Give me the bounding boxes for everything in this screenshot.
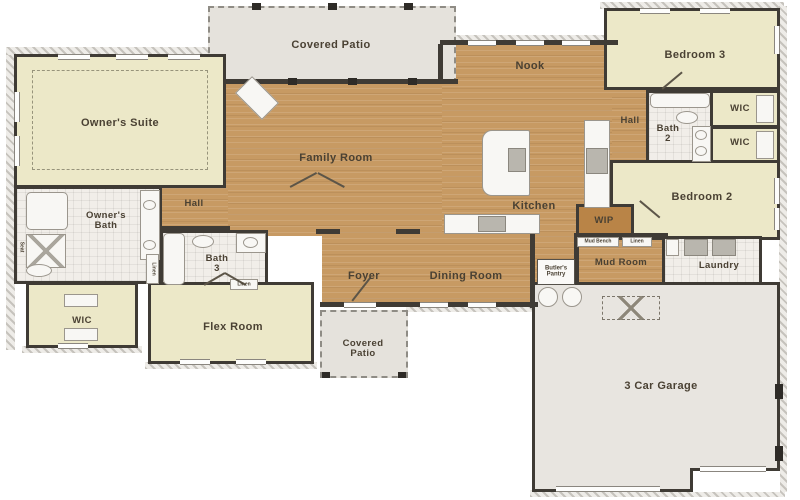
family-column-1 bbox=[288, 78, 297, 85]
sink-bath3 bbox=[243, 237, 258, 248]
sink-owners-1 bbox=[143, 200, 156, 210]
label-bath2: Bath 2 bbox=[657, 124, 680, 145]
label-covered-patio-bottom: Covered Patio bbox=[343, 339, 384, 360]
label-bath3: Bath 3 bbox=[206, 254, 229, 275]
wic-bl-shelf-2 bbox=[64, 328, 98, 341]
label-kitchen: Kitchen bbox=[512, 201, 555, 213]
sink-bath2-2 bbox=[695, 146, 707, 156]
label-butlers-pantry-line2: Pantry bbox=[545, 272, 567, 278]
window-flex-bottom-2 bbox=[236, 359, 266, 365]
wic-bl-shelf-1 bbox=[64, 294, 98, 307]
label-hall-left: Hall bbox=[184, 199, 203, 209]
water-heater-1 bbox=[538, 287, 558, 307]
label-mud-room: Mud Room bbox=[595, 258, 647, 268]
shower-owners-bath bbox=[26, 234, 66, 268]
label-owners-suite: Owner's Suite bbox=[81, 118, 159, 130]
window-bedroom3-top-2 bbox=[700, 8, 730, 14]
label-linen-bath3: Linen bbox=[237, 282, 250, 287]
wall-dining-right bbox=[530, 232, 535, 308]
kitchen-cooktop bbox=[478, 216, 506, 232]
family-column-3 bbox=[408, 78, 417, 85]
label-bath3-line2: 3 bbox=[206, 264, 229, 274]
window-dining-bottom-1 bbox=[420, 302, 448, 308]
label-bedroom2: Bedroom 2 bbox=[671, 192, 732, 204]
window-owners-suite-left-1 bbox=[14, 92, 20, 122]
family-column-2 bbox=[348, 78, 357, 85]
wic-r1-shelf bbox=[756, 95, 774, 123]
label-family-room: Family Room bbox=[299, 153, 372, 165]
label-dining-room: Dining Room bbox=[430, 271, 503, 283]
exterior-hatch-right bbox=[779, 6, 787, 492]
label-covered-patio-top: Covered Patio bbox=[291, 40, 370, 52]
label-nook: Nook bbox=[515, 61, 544, 73]
patio-post-3 bbox=[404, 3, 413, 10]
label-bedroom3: Bedroom 3 bbox=[664, 50, 725, 62]
label-laundry: Laundry bbox=[699, 261, 739, 271]
door-front-gap bbox=[344, 302, 376, 308]
label-foyer: Foyer bbox=[348, 271, 380, 283]
window-bedroom3-right bbox=[774, 26, 780, 54]
wall-foyer-stub-right bbox=[396, 229, 420, 234]
tub-owners-bath bbox=[26, 192, 68, 230]
window-nook-top-1 bbox=[468, 40, 496, 46]
tub-bath3 bbox=[163, 233, 185, 285]
label-wic-right-upper: WIC bbox=[730, 104, 750, 114]
window-owners-suite-top-1 bbox=[58, 54, 90, 60]
sink-owners-2 bbox=[143, 240, 156, 250]
dryer bbox=[712, 239, 736, 256]
label-wip: WIP bbox=[594, 216, 613, 226]
label-covered-patio-bottom-line2: Patio bbox=[343, 349, 384, 359]
garage-door-gap-2 bbox=[700, 466, 766, 472]
label-owners-bath-line2: Bath bbox=[86, 221, 126, 231]
laundry-shelf bbox=[666, 239, 679, 256]
front-patio-post-2 bbox=[398, 372, 406, 378]
wall-nook-left-stub bbox=[438, 44, 443, 82]
label-garage: 3 Car Garage bbox=[624, 381, 697, 393]
front-patio-post-1 bbox=[322, 372, 330, 378]
window-nook-top-3 bbox=[562, 40, 590, 46]
garage-pilaster-2 bbox=[775, 446, 783, 461]
kitchen-range bbox=[586, 148, 608, 174]
window-wic-bottom bbox=[58, 343, 88, 349]
garage-door-gap-1 bbox=[556, 486, 660, 492]
label-linen-owners: Linen bbox=[150, 262, 155, 275]
window-flex-bottom-1 bbox=[180, 359, 210, 365]
window-owners-suite-top-3 bbox=[168, 54, 200, 60]
wic-r2-shelf bbox=[756, 131, 774, 159]
label-hall-right: Hall bbox=[620, 116, 639, 126]
wood-floor-foyer-dining bbox=[322, 232, 534, 306]
window-bedroom2-right-2 bbox=[774, 208, 780, 230]
window-nook-top-2 bbox=[516, 40, 544, 46]
label-wic-right-lower: WIC bbox=[730, 138, 750, 148]
label-mud-linen: Linen bbox=[630, 239, 643, 244]
wall-hall-left-bottom bbox=[158, 226, 230, 231]
label-butlers-pantry: Butler's Pantry bbox=[545, 266, 567, 279]
kitchen-island-sink bbox=[508, 148, 526, 172]
label-owners-bath: Owner's Bath bbox=[86, 211, 126, 232]
window-bedroom2-right-1 bbox=[774, 178, 780, 204]
water-heater-2 bbox=[562, 287, 582, 307]
sink-bath2-1 bbox=[695, 130, 707, 140]
floor-plan: Covered Patio Owner's Suite Family Room … bbox=[0, 0, 800, 500]
washer bbox=[684, 239, 708, 256]
patio-post-1 bbox=[252, 3, 261, 10]
window-owners-suite-top-2 bbox=[116, 54, 148, 60]
garage-pilaster-1 bbox=[775, 384, 783, 399]
window-dining-bottom-2 bbox=[468, 302, 496, 308]
tub-bath2 bbox=[650, 93, 710, 108]
toilet-bath3 bbox=[192, 235, 214, 248]
label-flex-room: Flex Room bbox=[203, 322, 263, 334]
attic-access bbox=[602, 296, 660, 320]
label-bath2-line2: 2 bbox=[657, 134, 680, 144]
wall-foyer-stub-left bbox=[316, 229, 340, 234]
label-seat: Seat bbox=[18, 242, 23, 253]
label-mud-bench: Mud Bench bbox=[585, 239, 612, 244]
label-wic-bottom-left: WIC bbox=[72, 316, 92, 326]
window-owners-suite-left-2 bbox=[14, 136, 20, 166]
window-bedroom3-top-1 bbox=[640, 8, 670, 14]
wall-family-patio bbox=[226, 79, 458, 84]
toilet-owners bbox=[26, 264, 52, 277]
patio-post-2 bbox=[328, 3, 337, 10]
